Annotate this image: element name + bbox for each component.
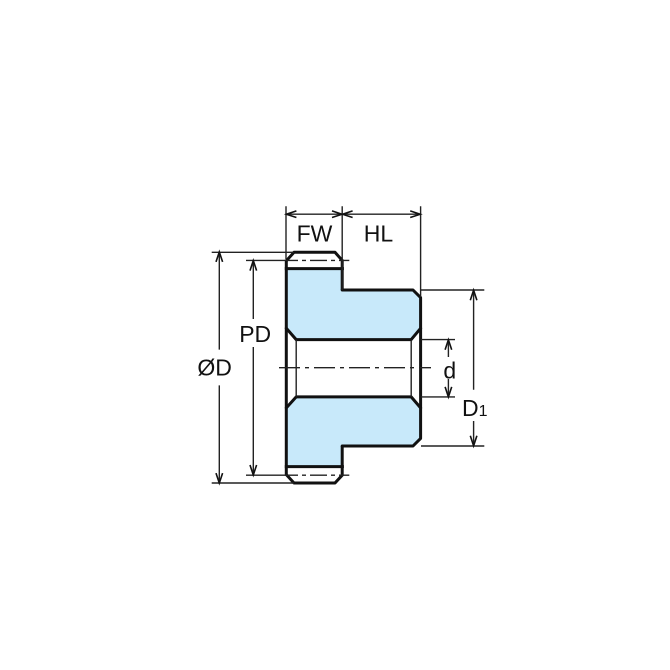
svg-text:PD: PD (239, 321, 271, 347)
svg-text:d: d (443, 357, 456, 383)
svg-text:FW: FW (297, 221, 333, 247)
svg-text:HL: HL (364, 221, 394, 247)
svg-text:ØD: ØD (197, 355, 232, 381)
